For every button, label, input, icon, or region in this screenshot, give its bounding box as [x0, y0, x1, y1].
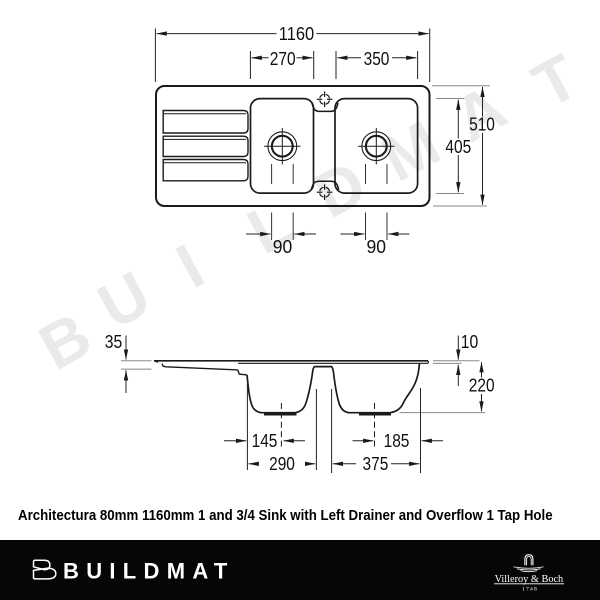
- svg-text:BUILDMAT: BUILDMAT: [63, 559, 235, 584]
- svg-text:1748: 1748: [522, 587, 538, 593]
- svg-text:Villeroy & Boch: Villeroy & Boch: [495, 574, 564, 585]
